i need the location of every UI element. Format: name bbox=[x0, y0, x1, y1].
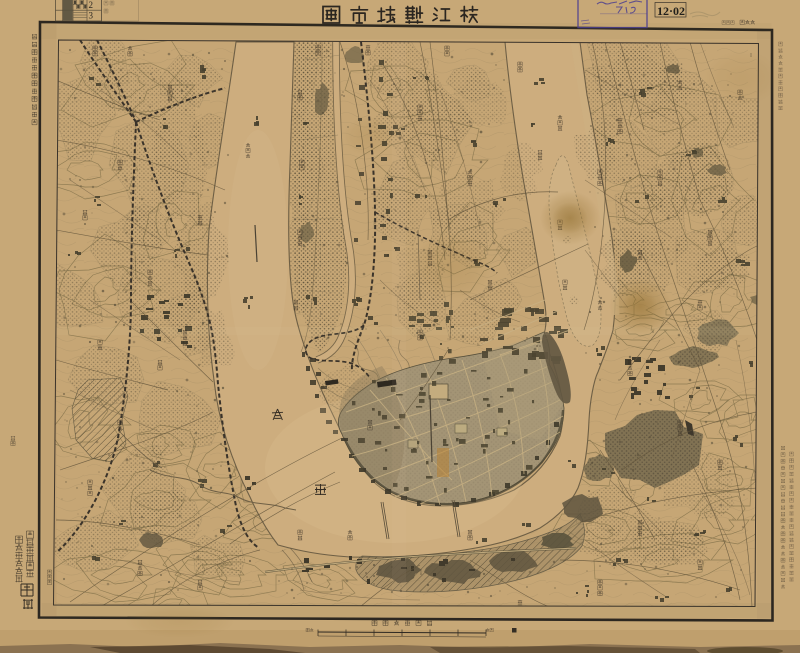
svg-text:12·02: 12·02 bbox=[657, 4, 685, 18]
svg-text:2: 2 bbox=[89, 0, 94, 10]
svg-text:3: 3 bbox=[89, 11, 94, 21]
